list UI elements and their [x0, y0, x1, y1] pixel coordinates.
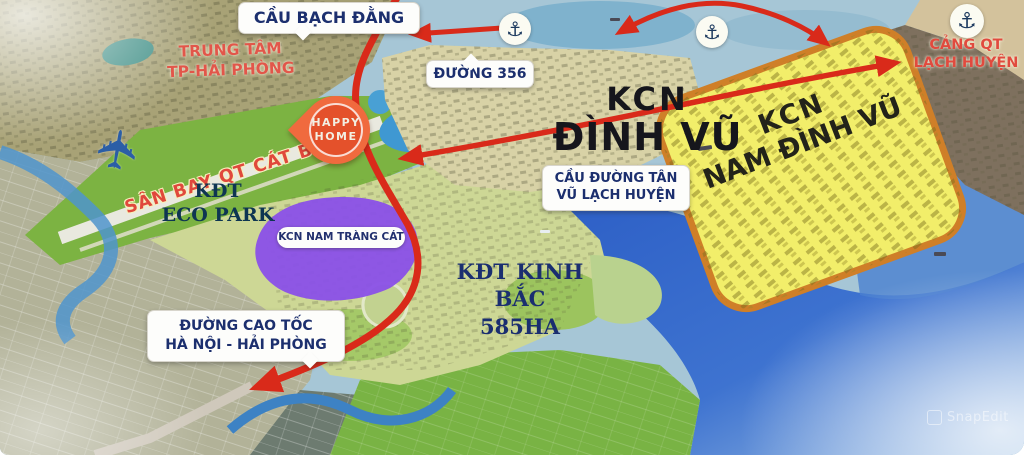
anchor-icon: ⚓ — [499, 13, 531, 45]
label-kcn-nam-trang-cat: KCN NAM TRÀNG CÁT — [277, 227, 405, 248]
watermark: SnapEdit — [927, 410, 1009, 425]
map-screenshot: CẦU BẠCH ĐẰNG TRUNG TÂM TP-HẢI PHÒNG ĐƯỜ… — [0, 0, 1024, 466]
anchor-icon: ⚓ — [696, 16, 728, 48]
callout-cau-bach-dang: CẦU BẠCH ĐẰNG — [238, 2, 420, 34]
masterplan-map: CẦU BẠCH ĐẰNG TRUNG TÂM TP-HẢI PHÒNG ĐƯỜ… — [0, 0, 1024, 455]
label-kdt-kinh-bac: KĐT KINH BẮC 585HA — [430, 258, 610, 340]
callout-cau-bach-dang-label: CẦU BẠCH ĐẰNG — [254, 8, 404, 27]
anchor-icon: ⚓ — [950, 4, 984, 38]
kcn-nam-trang-cat-zone — [255, 197, 417, 301]
callout-duong-356: ĐƯỜNG 356 — [426, 60, 534, 88]
label-kdt-eco-park: KĐT ECO PARK — [158, 180, 278, 228]
callout-cao-toc-ha-noi-hai-phong: ĐƯỜNG CAO TỐC HÀ NỘI - HẢI PHÒNG — [147, 310, 345, 362]
snapedit-icon — [927, 410, 942, 425]
label-cang-qt-lach-huyen: CẢNG QT LẠCH HUYỆN — [912, 36, 1020, 72]
happy-home-pin-label: HAPPY HOME — [309, 103, 363, 157]
callout-duong-356-label: ĐƯỜNG 356 — [434, 66, 527, 82]
label-trung-tam-tp-hai-phong: TRUNG TÂM TP-HẢI PHÒNG — [147, 37, 313, 83]
callout-cau-duong-tan-vu: CẦU ĐƯỜNG TÂN VŨ LẠCH HUYỆN — [542, 165, 690, 211]
